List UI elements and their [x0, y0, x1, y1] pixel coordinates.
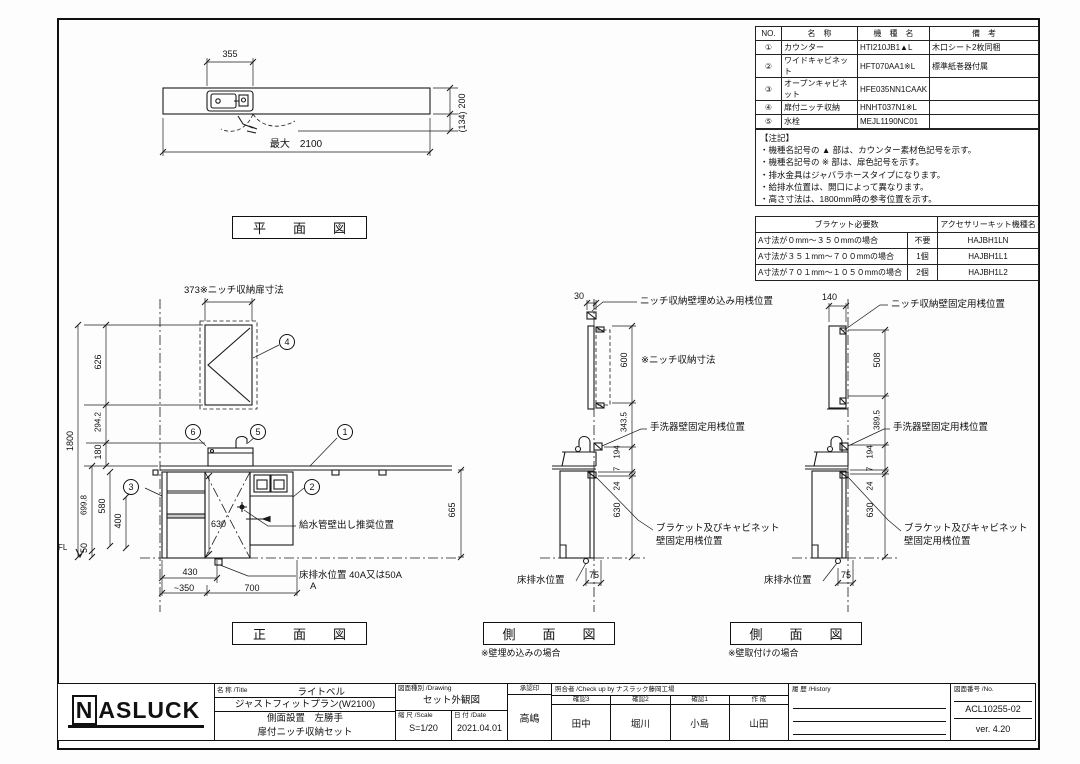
check-col-2: 確認2 堀川 [611, 696, 670, 740]
side1-dim-194: 194 [613, 445, 622, 458]
part-model: HNHT037N1※L [858, 101, 930, 115]
date-value: 2021.04.01 [452, 720, 507, 740]
date-header: 日 付 /Date [452, 711, 507, 720]
title-cell: 名 称 /Title ライトベル ジャストフィットプラン(W2100) 側面設置… [215, 684, 396, 740]
bracket-row-3: A寸法が７０１mm～１０５０mmの場合 2個 HAJBH1L2 [756, 265, 1039, 281]
bracket-model: HAJBH1L2 [938, 265, 1039, 281]
bracket-table: ブラケット必要数 アクセサリーキット機種名 A寸法が０mm～３５０mmの場合 不… [755, 216, 1039, 281]
version: ver. 4.20 [951, 724, 1035, 734]
front-dim-294-2: 294.2 [94, 412, 103, 432]
side2-dim-508: 508 [872, 352, 882, 367]
side2-basin-label: 手洗器壁固定用桟位置 [893, 423, 988, 433]
side1-niche-label: ※ニッチ収納寸法 [641, 356, 715, 366]
parts-header-model: 機 種 名 [858, 27, 930, 41]
part-model: HFE035NN1CAAK [858, 78, 930, 101]
notes-box: 【注記】 ・機種名記号の ▲ 部は、カウンター素材色記号を示す。 ・機種名記号の… [755, 129, 1039, 206]
front-fl-label: FL [58, 543, 67, 553]
drawing-number: ACL10255-02 [951, 704, 1035, 714]
note-item: ・給排水位置は、開口によって異なります。 [760, 181, 1034, 193]
side1-dim-630: 630 [612, 502, 622, 517]
product-orientation: 側面設置 左勝手 [215, 712, 395, 726]
history-header: 履 歴 /History [792, 686, 831, 694]
side2-dim-630: 630 [865, 502, 875, 517]
part-no: ③ [756, 78, 782, 101]
part-name: オープンキャビネット [782, 78, 858, 101]
side1-dim-30: 30 [574, 291, 584, 301]
nasluck-logo: NASLUCK [68, 697, 204, 728]
side2-top-label: ニッチ収納壁固定用桟位置 [891, 300, 1005, 310]
part-name: ワイドキャビネット [782, 55, 858, 78]
side1-bracket-label-1: ブラケット及びキャビネット [656, 524, 780, 534]
callout-1: 1 [337, 424, 353, 440]
part-model: MEJL1190NC01 [858, 115, 930, 129]
callout-3: 3 [123, 479, 139, 495]
approval-cell: 承認印 高嶋 [508, 684, 552, 740]
side2-view-subtitle: ※壁取付けの場合 [728, 648, 799, 658]
parts-header-row: NO. 名 称 機 種 名 備 考 [756, 27, 1039, 41]
parts-row-5: ⑤ 水栓 MEJL1190NC01 [756, 115, 1039, 129]
plan-dim-355: 355 [222, 49, 237, 59]
front-supply-label: 給水管壁出し推奨位置 [299, 521, 394, 531]
side2-bracket-label-1: ブラケット及びキャビネット [904, 524, 1028, 534]
part-model: HFT070AA1※L [858, 55, 930, 78]
history-line [793, 721, 946, 722]
parts-row-2: ② ワイドキャビネット HFT070AA1※L 標準紙巻器付属 [756, 55, 1039, 78]
part-remark: 木口シート2枚同梱 [930, 41, 1039, 55]
side2-dim-24: 24 [866, 482, 875, 491]
drawing-no-cell: 図面番号 /No. ACL10255-02 ver. 4.20 [951, 684, 1035, 740]
product-series: ライトベル [247, 684, 395, 698]
front-drain-label: 床排水位置 40A又は50A [299, 571, 402, 581]
history-line [793, 708, 946, 709]
parts-header-name: 名 称 [782, 27, 858, 41]
front-dim-626: 626 [93, 354, 103, 369]
bracket-qty: 1個 [908, 249, 938, 265]
side2-view-title: 側 面 図 [730, 622, 862, 645]
scale-header: 縮 尺 /Scale [396, 711, 451, 720]
check-role: 確認2 [611, 696, 669, 705]
front-drain-label-a: A [310, 582, 316, 592]
front-dim-665: 665 [447, 502, 457, 517]
note-item: ・機種名記号の ※ 部は、扉色記号を示す。 [760, 156, 1034, 168]
bracket-qty: 2個 [908, 265, 938, 281]
scale-value: S=1/20 [396, 720, 451, 740]
plan-dim-max2100: 最大 2100 [270, 140, 322, 150]
side1-drain-label: 床排水位置 [517, 576, 565, 586]
notes-title: 【注記】 [760, 132, 1034, 144]
drawing-no-header: 図面番号 /No. [954, 686, 994, 694]
part-remark [930, 78, 1039, 101]
history-cell: 履 歴 /History [789, 684, 951, 740]
bracket-cond: A寸法が０mm～３５０mmの場合 [756, 233, 908, 249]
front-dim-699-8: 699.8 [80, 495, 89, 515]
front-dim-1800: 1800 [65, 431, 75, 451]
part-name: 扉付ニッチ収納 [782, 101, 858, 115]
part-name: 水栓 [782, 115, 858, 129]
side1-dim-343-5: 343.5 [620, 412, 629, 432]
front-top-label: 373※ニッチ収納扉寸法 [184, 286, 284, 296]
title-block: NASLUCK 名 称 /Title ライトベル ジャストフィットプラン(W21… [57, 683, 1036, 741]
callout-5: 5 [250, 424, 266, 440]
side1-dim-24: 24 [613, 482, 622, 491]
bracket-header-left: ブラケット必要数 [756, 217, 938, 233]
bracket-row-1: A寸法が０mm～３５０mmの場合 不要 HAJBH1LN [756, 233, 1039, 249]
part-remark [930, 115, 1039, 129]
bracket-header-row: ブラケット必要数 アクセサリーキット機種名 [756, 217, 1039, 233]
part-remark: 標準紙巻器付属 [930, 55, 1039, 78]
side1-top-label: ニッチ収納壁埋め込み用桟位置 [640, 297, 773, 307]
drawing-type-cell: 図面種別 /Drawing セット外観図 縮 尺 /Scale S=1/20 日… [396, 684, 508, 740]
part-model: HTI210JB1▲L [858, 41, 930, 55]
title-header: 名 称 /Title [215, 687, 247, 695]
logo-rest: ASLUCK [98, 697, 200, 723]
parts-header-no: NO. [756, 27, 782, 41]
bracket-header-right: アクセサリーキット機種名 [938, 217, 1039, 233]
part-remark [930, 101, 1039, 115]
bracket-model: HAJBH1LN [938, 233, 1039, 249]
check-name: 山田 [730, 705, 788, 740]
front-dim-400: 400 [113, 513, 123, 528]
logo-cell: NASLUCK [58, 684, 215, 740]
callout-2: 2 [304, 479, 320, 495]
bracket-model: HAJBH1L1 [938, 249, 1039, 265]
side1-basin-label: 手洗器壁固定用桟位置 [650, 423, 745, 433]
part-no: ① [756, 41, 782, 55]
plan-view-title: 平 面 図 [232, 216, 367, 239]
check-role: 確認1 [671, 696, 729, 705]
check-role: 確認3 [552, 696, 610, 705]
bracket-qty: 不要 [908, 233, 938, 249]
check-role: 作 成 [730, 696, 788, 705]
date-cell: 日 付 /Date 2021.04.01 [452, 711, 507, 740]
scale-date-row: 縮 尺 /Scale S=1/20 日 付 /Date 2021.04.01 [396, 711, 507, 740]
no-line [954, 701, 1032, 702]
front-dim-700: 700 [244, 583, 259, 593]
side1-view-subtitle: ※壁埋め込みの場合 [481, 648, 561, 658]
check-name: 堀川 [611, 705, 669, 740]
note-item: ・機種名記号の ▲ 部は、カウンター素材色記号を示す。 [760, 144, 1034, 156]
side2-bracket-label-2: 壁固定用桟位置 [904, 537, 971, 547]
check-col-author: 作 成 山田 [730, 696, 788, 740]
bracket-cond: A寸法が３５１mm～７００mmの場合 [756, 249, 908, 265]
bracket-cond: A寸法が７０１mm～１０５０mmの場合 [756, 265, 908, 281]
check-cell: 照合者 /Check up by ナスラック藤岡工場 確認3 田中 確認2 堀川… [552, 684, 789, 740]
part-no: ⑤ [756, 115, 782, 129]
parts-header-remark: 備 考 [930, 27, 1039, 41]
side2-dim-75: 75 [841, 570, 851, 580]
front-dim-430: 430 [182, 567, 197, 577]
side2-dim-7: 7 [866, 467, 875, 471]
part-no: ② [756, 55, 782, 78]
no-line [954, 718, 1032, 719]
scale-cell: 縮 尺 /Scale S=1/20 [396, 711, 452, 740]
plan-dim-134: (134) [457, 111, 467, 132]
approval-header: 承認印 [508, 684, 551, 695]
note-item: ・高さ寸法は、1800mm時の参考位置を示す。 [760, 193, 1034, 205]
front-dim-50: 50 [79, 543, 89, 553]
bracket-row-2: A寸法が３５１mm～７００mmの場合 1個 HAJBH1L1 [756, 249, 1039, 265]
plan-dim-200: 200 [457, 93, 467, 108]
check-col-3: 確認3 田中 [552, 696, 611, 740]
drawing-type-value: セット外観図 [396, 693, 507, 711]
side2-dim-389-5: 389.5 [873, 410, 882, 430]
side2-drain-label: 床排水位置 [764, 576, 812, 586]
side1-bracket-label-2: 壁固定用桟位置 [656, 537, 723, 547]
check-col-1: 確認1 小島 [671, 696, 730, 740]
check-header: 照合者 /Check up by ナスラック藤岡工場 [552, 684, 788, 696]
drawing-type-header: 図面種別 /Drawing [396, 684, 507, 693]
product-set: 扉付ニッチ収納セット [215, 726, 395, 740]
side1-dim-7: 7 [613, 467, 622, 471]
front-dim-180: 180 [93, 444, 103, 459]
logo-n: N [72, 695, 98, 725]
side2-dim-140: 140 [822, 292, 837, 302]
side2-dim-194: 194 [866, 445, 875, 458]
part-no: ④ [756, 101, 782, 115]
front-dim-630: 630 [211, 519, 226, 529]
part-name: カウンター [782, 41, 858, 55]
title-row-1: 名 称 /Title ライトベル [215, 684, 395, 698]
approval-name: 高嶋 [508, 695, 551, 740]
history-line [793, 734, 946, 735]
check-columns: 確認3 田中 確認2 堀川 確認1 小島 作 成 山田 [552, 696, 788, 740]
callout-6: 6 [185, 424, 201, 440]
parts-row-1: ① カウンター HTI210JB1▲L 木口シート2枚同梱 [756, 41, 1039, 55]
check-name: 小島 [671, 705, 729, 740]
front-dim-580: 580 [97, 498, 107, 513]
side1-dim-75: 75 [589, 570, 599, 580]
check-name: 田中 [552, 705, 610, 740]
parts-row-4: ④ 扉付ニッチ収納 HNHT037N1※L [756, 101, 1039, 115]
note-item: ・排水金具はジャバラホースタイプになります。 [760, 169, 1034, 181]
side1-view-title: 側 面 図 [483, 622, 615, 645]
drawing-sheet: 355 最大 2100 200 (134) 平 面 図 373※ニッチ収納扉寸法… [0, 0, 1080, 764]
front-dim-350: ~350 [174, 583, 194, 593]
parts-row-3: ③ オープンキャビネット HFE035NN1CAAK [756, 78, 1039, 101]
front-view-title: 正 面 図 [232, 622, 367, 645]
callout-4: 4 [279, 334, 295, 350]
side1-dim-600: 600 [619, 352, 629, 367]
product-plan: ジャストフィットプラン(W2100) [215, 698, 395, 712]
